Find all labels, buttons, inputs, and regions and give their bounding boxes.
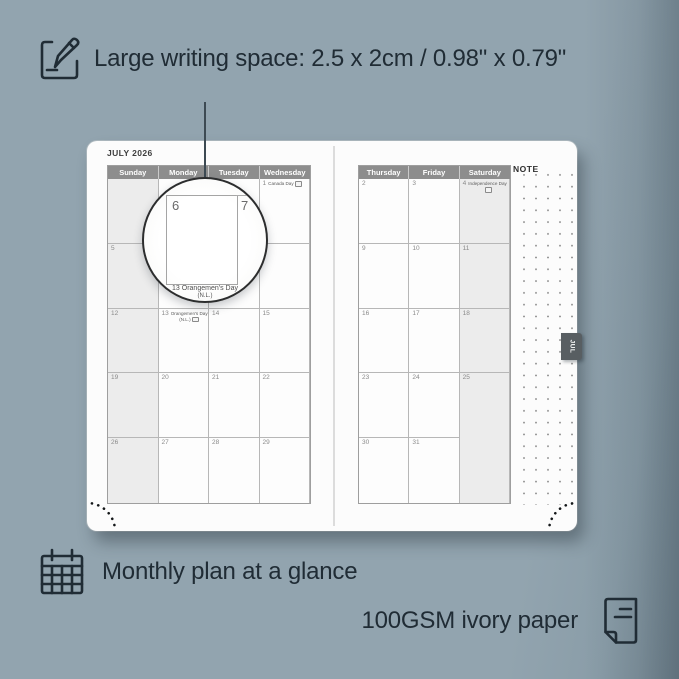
paper-sheet-icon: [600, 595, 640, 647]
date-number: 15: [263, 311, 270, 318]
calendar-grid-icon: [38, 546, 86, 598]
date-number: 3: [412, 181, 416, 188]
holiday-label: Independence Day: [468, 181, 507, 193]
day-header-friday: Friday: [409, 166, 459, 179]
date-number: 19: [111, 375, 118, 382]
calendar-cell-2: 2: [359, 179, 409, 244]
calendar-cell-9: 9: [359, 244, 409, 309]
flag-icon: [485, 187, 492, 193]
holiday-label: Canada Day: [268, 181, 302, 187]
calendar-cell-23: 23: [359, 373, 409, 438]
date-number: 14: [212, 311, 219, 318]
calendar-cell-29: 29: [260, 438, 311, 503]
calendar-cell-11: 11: [460, 244, 510, 309]
date-number: 30: [362, 440, 369, 447]
date-number: 9: [362, 246, 366, 253]
date-number: 13: [162, 311, 169, 318]
magnified-holiday-text: 13 Orangemen's Day: [144, 285, 266, 292]
date-number: 25: [463, 375, 470, 382]
date-number: 23: [362, 375, 369, 382]
calendar-cell-30: 30: [359, 438, 409, 503]
pencil-note-icon: [38, 34, 84, 84]
product-image: Large writing space: 2.5 x 2cm / 0.98" x…: [0, 0, 679, 679]
date-number: 22: [263, 375, 270, 382]
annotation-paper: 100GSM ivory paper: [0, 595, 640, 647]
book-spine: [333, 146, 335, 526]
calendar-cell-4: 4Independence Day: [460, 179, 510, 244]
annotation-monthly-plan: Monthly plan at a glance: [38, 546, 357, 598]
calendar-cell-31: 31: [409, 438, 459, 503]
date-number: 10: [412, 246, 419, 253]
flag-icon: [295, 181, 302, 187]
calendar-cell-17: 17: [409, 309, 459, 374]
calendar-cell-18: 18: [460, 309, 510, 374]
date-number: 1: [263, 181, 267, 188]
date-number: 27: [162, 440, 169, 447]
calendar-cell-13: 13Orangemen's Day(N.L.): [159, 309, 210, 374]
annotation-writing-space: Large writing space: 2.5 x 2cm / 0.98" x…: [38, 34, 566, 84]
date-number: 18: [463, 311, 470, 318]
date-number: 12: [111, 311, 118, 318]
month-title: JULY 2026: [107, 148, 153, 158]
calendar-right-page: ThursdayFridaySaturday 234Independence D…: [358, 165, 511, 504]
day-header-thursday: Thursday: [359, 166, 409, 179]
calendar-cell-20: 20: [159, 373, 210, 438]
day-header-saturday: Saturday: [460, 166, 510, 179]
date-number: 5: [111, 246, 115, 253]
month-tab-label: JUL: [568, 340, 575, 354]
calendar-cell-21: 21: [209, 373, 260, 438]
magnified-holiday-subtext: (N.L.): [144, 293, 266, 299]
date-number: 31: [412, 440, 419, 447]
day-header-tuesday: Tuesday: [209, 166, 260, 179]
calendar-grid: 234Independence Day910111617182324253031: [359, 179, 510, 503]
day-header-sunday: Sunday: [108, 166, 159, 179]
date-number: 26: [111, 440, 118, 447]
magnified-date-7: 7: [241, 198, 248, 213]
day-header-row: ThursdayFridaySaturday: [359, 166, 510, 179]
callout-line: [204, 102, 206, 180]
magnifier-circle: 6 7 13 Orangemen's Day (N.L.): [142, 177, 268, 303]
date-number: 4: [463, 181, 467, 188]
calendar-cell-25: 25: [460, 373, 510, 438]
calendar-cell-8: 8: [260, 244, 311, 309]
monthly-plan-text: Monthly plan at a glance: [102, 558, 357, 586]
magnified-gridline: [236, 195, 266, 196]
calendar-cell-16: 16: [359, 309, 409, 374]
calendar-cell-22: 22: [260, 373, 311, 438]
date-number: 11: [463, 246, 470, 253]
date-number: 17: [412, 311, 419, 318]
flag-icon: [192, 317, 199, 323]
magnified-date-6: 6: [172, 198, 179, 213]
calendar-cell-14: 14: [209, 309, 260, 374]
calendar-cell-12: 12: [108, 309, 159, 374]
note-label: NOTE: [513, 164, 543, 174]
calendar-cell-28: 28: [209, 438, 260, 503]
date-number: 28: [212, 440, 219, 447]
day-header-wednesday: Wednesday: [260, 166, 311, 179]
date-number: 21: [212, 375, 219, 382]
date-number: 24: [412, 375, 419, 382]
calendar-cell-10: 10: [409, 244, 459, 309]
calendar-cell-24: 24: [409, 373, 459, 438]
month-tab-jul: JUL: [561, 333, 582, 360]
calendar-cell-empty: [460, 438, 510, 503]
paper-text: 100GSM ivory paper: [361, 607, 578, 635]
calendar-cell-15: 15: [260, 309, 311, 374]
calendar-cell-27: 27: [159, 438, 210, 503]
date-number: 16: [362, 311, 369, 318]
date-number: 29: [263, 440, 270, 447]
holiday-label: Orangemen's Day(N.L.): [171, 311, 208, 323]
calendar-cell-19: 19: [108, 373, 159, 438]
calendar-cell-26: 26: [108, 438, 159, 503]
date-number: 20: [162, 375, 169, 382]
calendar-cell-3: 3: [409, 179, 459, 244]
writing-space-text: Large writing space: 2.5 x 2cm / 0.98" x…: [94, 45, 566, 73]
date-number: 2: [362, 181, 366, 188]
